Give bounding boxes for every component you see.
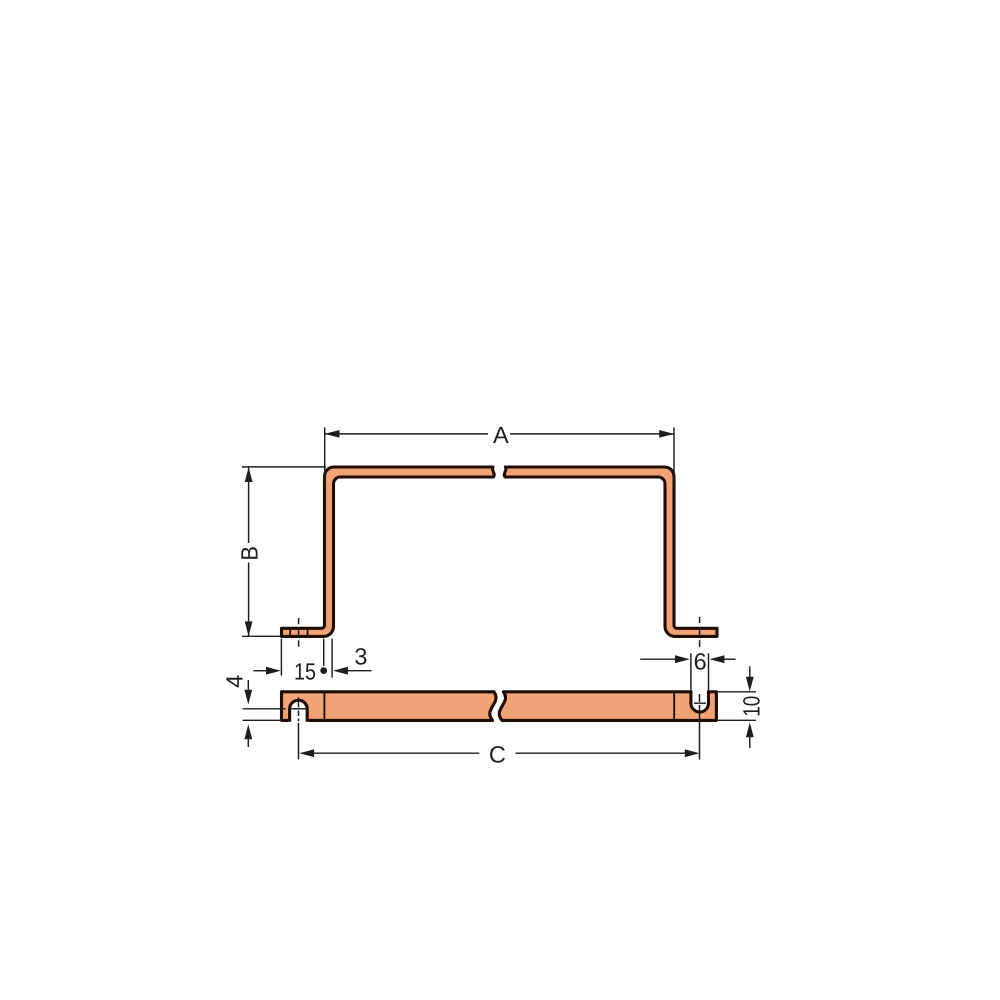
svg-text:15: 15	[294, 658, 316, 684]
svg-text:C: C	[489, 741, 506, 767]
svg-text:B: B	[237, 546, 263, 561]
svg-text:A: A	[493, 422, 509, 448]
svg-text:3: 3	[354, 643, 367, 669]
svg-text:6: 6	[694, 648, 707, 674]
svg-text:4: 4	[222, 675, 248, 688]
svg-text:10: 10	[738, 696, 764, 717]
